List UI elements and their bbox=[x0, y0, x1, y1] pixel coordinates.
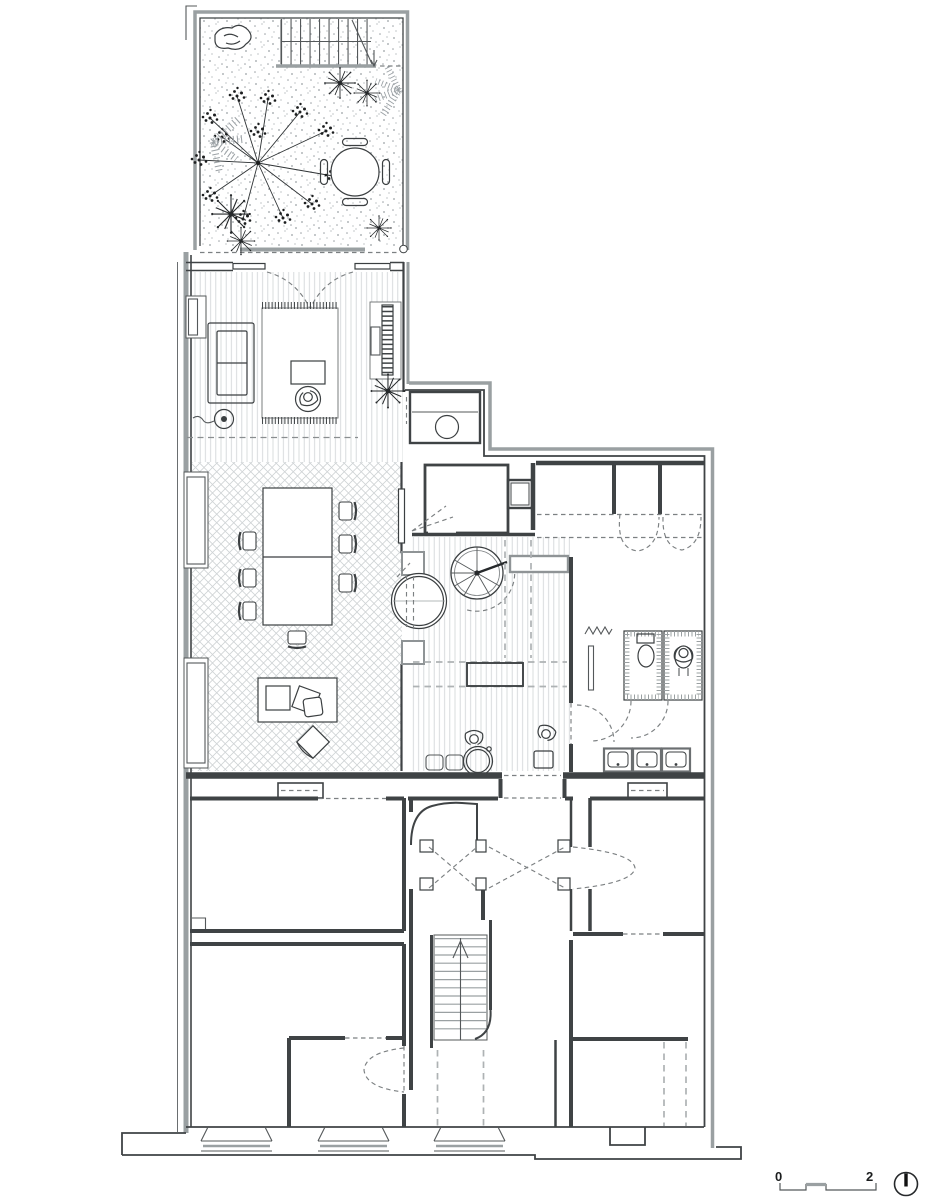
coat-hooks bbox=[585, 627, 612, 634]
coffee-table bbox=[291, 361, 325, 384]
bathroom bbox=[577, 627, 702, 772]
scale-bar: 0 2 bbox=[775, 1169, 876, 1190]
main-staircase bbox=[432, 920, 491, 1048]
window-bay bbox=[184, 658, 208, 768]
door-swing-x bbox=[429, 847, 477, 888]
double-door-swing bbox=[364, 1048, 404, 1092]
powder-room bbox=[407, 392, 481, 443]
bathroom-sinks bbox=[604, 749, 690, 772]
entrance-door-recess bbox=[434, 1127, 505, 1151]
indoor-plant bbox=[371, 374, 406, 409]
double-door-swing bbox=[573, 847, 635, 889]
window-bay bbox=[184, 472, 208, 568]
side-door-recess bbox=[610, 1127, 645, 1145]
dining-table bbox=[263, 488, 332, 625]
arched-niche bbox=[411, 803, 477, 845]
street-facade bbox=[122, 1127, 741, 1159]
toilet-stalls bbox=[591, 631, 702, 741]
chimney-block bbox=[508, 480, 532, 508]
floor-plan-canvas: 0 2 bbox=[0, 0, 951, 1200]
south-wall bbox=[186, 776, 704, 799]
entrance-hall bbox=[408, 798, 635, 1127]
scale-end-label: 2 bbox=[866, 1169, 873, 1184]
lower-left-rooms bbox=[190, 783, 404, 1127]
floor-textures bbox=[192, 18, 570, 771]
window-recess bbox=[318, 1127, 389, 1151]
lower-right-rooms bbox=[556, 783, 705, 1127]
door-swing-x bbox=[489, 847, 565, 888]
scale-start-label: 0 bbox=[775, 1169, 782, 1184]
door-jambs bbox=[420, 840, 570, 890]
console-shelf bbox=[510, 556, 568, 572]
floor-plan-page: 0 2 bbox=[0, 0, 951, 1200]
radiator bbox=[589, 646, 594, 690]
window-recess bbox=[201, 1127, 272, 1151]
armchair bbox=[296, 387, 321, 412]
shelving-unit bbox=[370, 302, 401, 379]
play-table bbox=[258, 678, 337, 722]
north-arrow-icon bbox=[895, 1173, 918, 1196]
